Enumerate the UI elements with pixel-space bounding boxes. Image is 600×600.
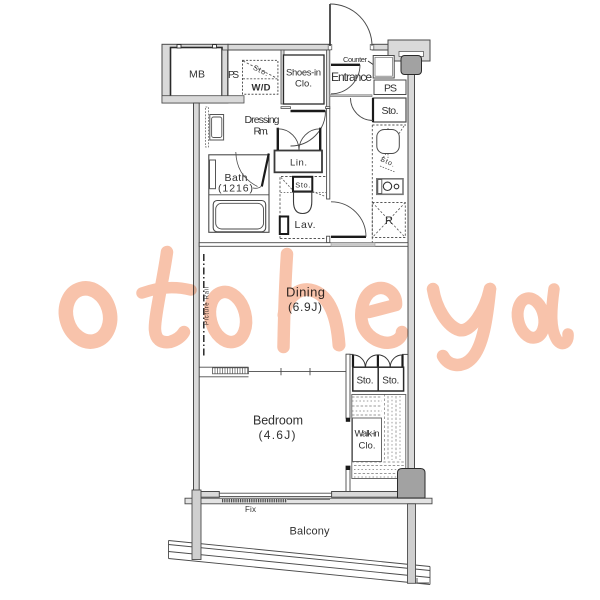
svg-text:Walk-in: Walk-in — [355, 429, 380, 440]
svg-text:PS: PS — [228, 70, 239, 81]
svg-text:Dressing: Dressing — [245, 114, 280, 126]
svg-text:Sto.: Sto. — [357, 376, 374, 387]
svg-text:Fix: Fix — [245, 505, 256, 514]
svg-text:Entrance: Entrance — [331, 70, 372, 84]
svg-text:W/D: W/D — [252, 83, 271, 94]
svg-text:Lin.: Lin. — [290, 158, 307, 169]
svg-text:PS: PS — [384, 83, 397, 95]
svg-text:Bedroom: Bedroom — [253, 414, 303, 428]
svg-text:Counter: Counter — [343, 55, 368, 64]
svg-text:R: R — [385, 215, 393, 227]
svg-text:(4.6J): (4.6J) — [259, 428, 296, 442]
svg-text:MB: MB — [189, 69, 205, 81]
svg-text:Clo.: Clo. — [295, 79, 312, 90]
svg-text:Balcony: Balcony — [290, 526, 331, 538]
svg-text:Clo.: Clo. — [359, 441, 376, 452]
svg-text:Lav.: Lav. — [295, 219, 316, 231]
svg-text:Sto.: Sto. — [382, 376, 399, 387]
svg-text:Shoes-in: Shoes-in — [286, 68, 321, 79]
svg-text:Rm.: Rm. — [254, 126, 269, 138]
svg-text:Sto.: Sto. — [295, 181, 310, 190]
svg-text:Sto.: Sto. — [382, 105, 399, 117]
svg-text:(1216): (1216) — [218, 183, 253, 195]
